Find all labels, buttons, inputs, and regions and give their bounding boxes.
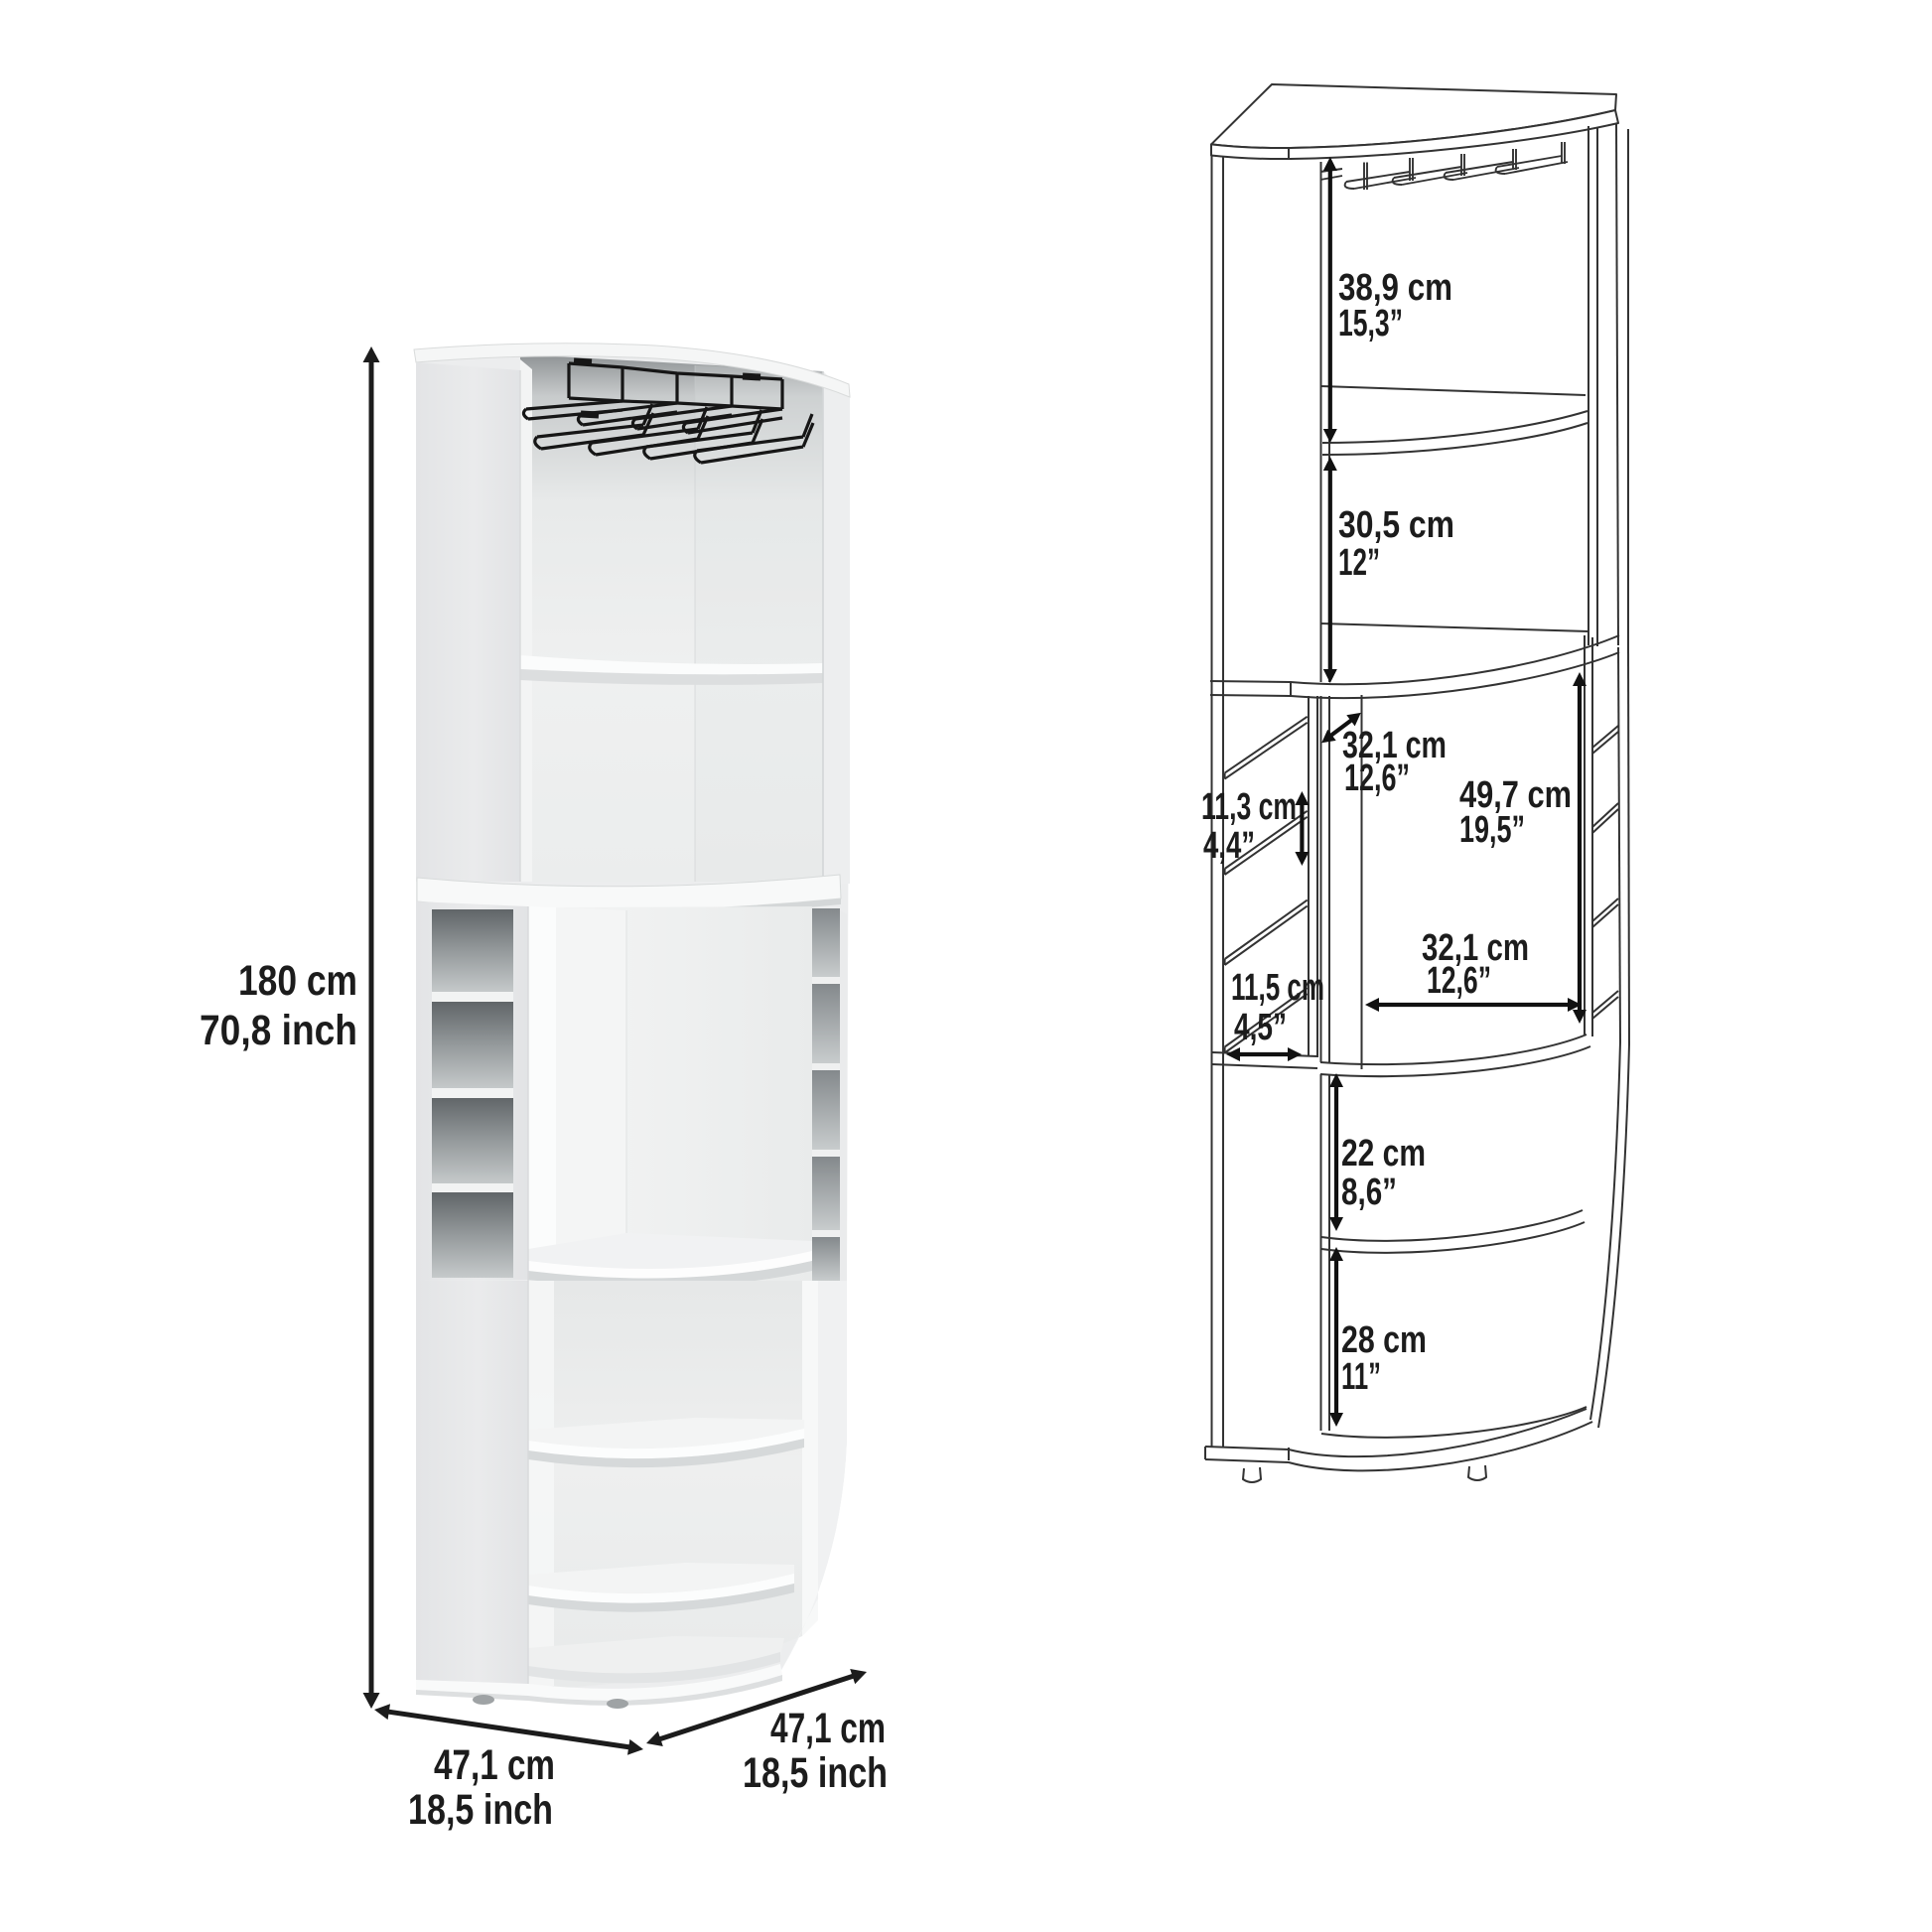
svg-text:11,5 cm: 11,5 cm [1231,967,1324,1009]
svg-text:4,5”: 4,5” [1234,1007,1287,1048]
svg-text:11”: 11” [1341,1356,1381,1398]
svg-text:18,5 inch: 18,5 inch [408,1786,553,1834]
svg-text:12”: 12” [1338,542,1380,584]
svg-text:47,1 cm: 47,1 cm [770,1705,886,1752]
svg-text:11,3 cm: 11,3 cm [1201,786,1297,828]
svg-text:18,5 inch: 18,5 inch [743,1749,888,1797]
svg-text:47,1 cm: 47,1 cm [434,1741,555,1789]
svg-text:8,6”: 8,6” [1341,1172,1397,1213]
svg-text:15,3”: 15,3” [1338,303,1403,345]
svg-text:12,6”: 12,6” [1344,758,1410,799]
svg-text:70,8 inch: 70,8 inch [200,1007,357,1054]
svg-text:28 cm: 28 cm [1341,1319,1427,1361]
svg-text:22 cm: 22 cm [1341,1133,1426,1174]
svg-text:4,4”: 4,4” [1203,825,1255,867]
svg-text:12,6”: 12,6” [1427,960,1491,1002]
svg-text:19,5”: 19,5” [1459,809,1525,851]
svg-text:180 cm: 180 cm [238,957,357,1005]
svg-text:30,5 cm: 30,5 cm [1338,504,1454,546]
